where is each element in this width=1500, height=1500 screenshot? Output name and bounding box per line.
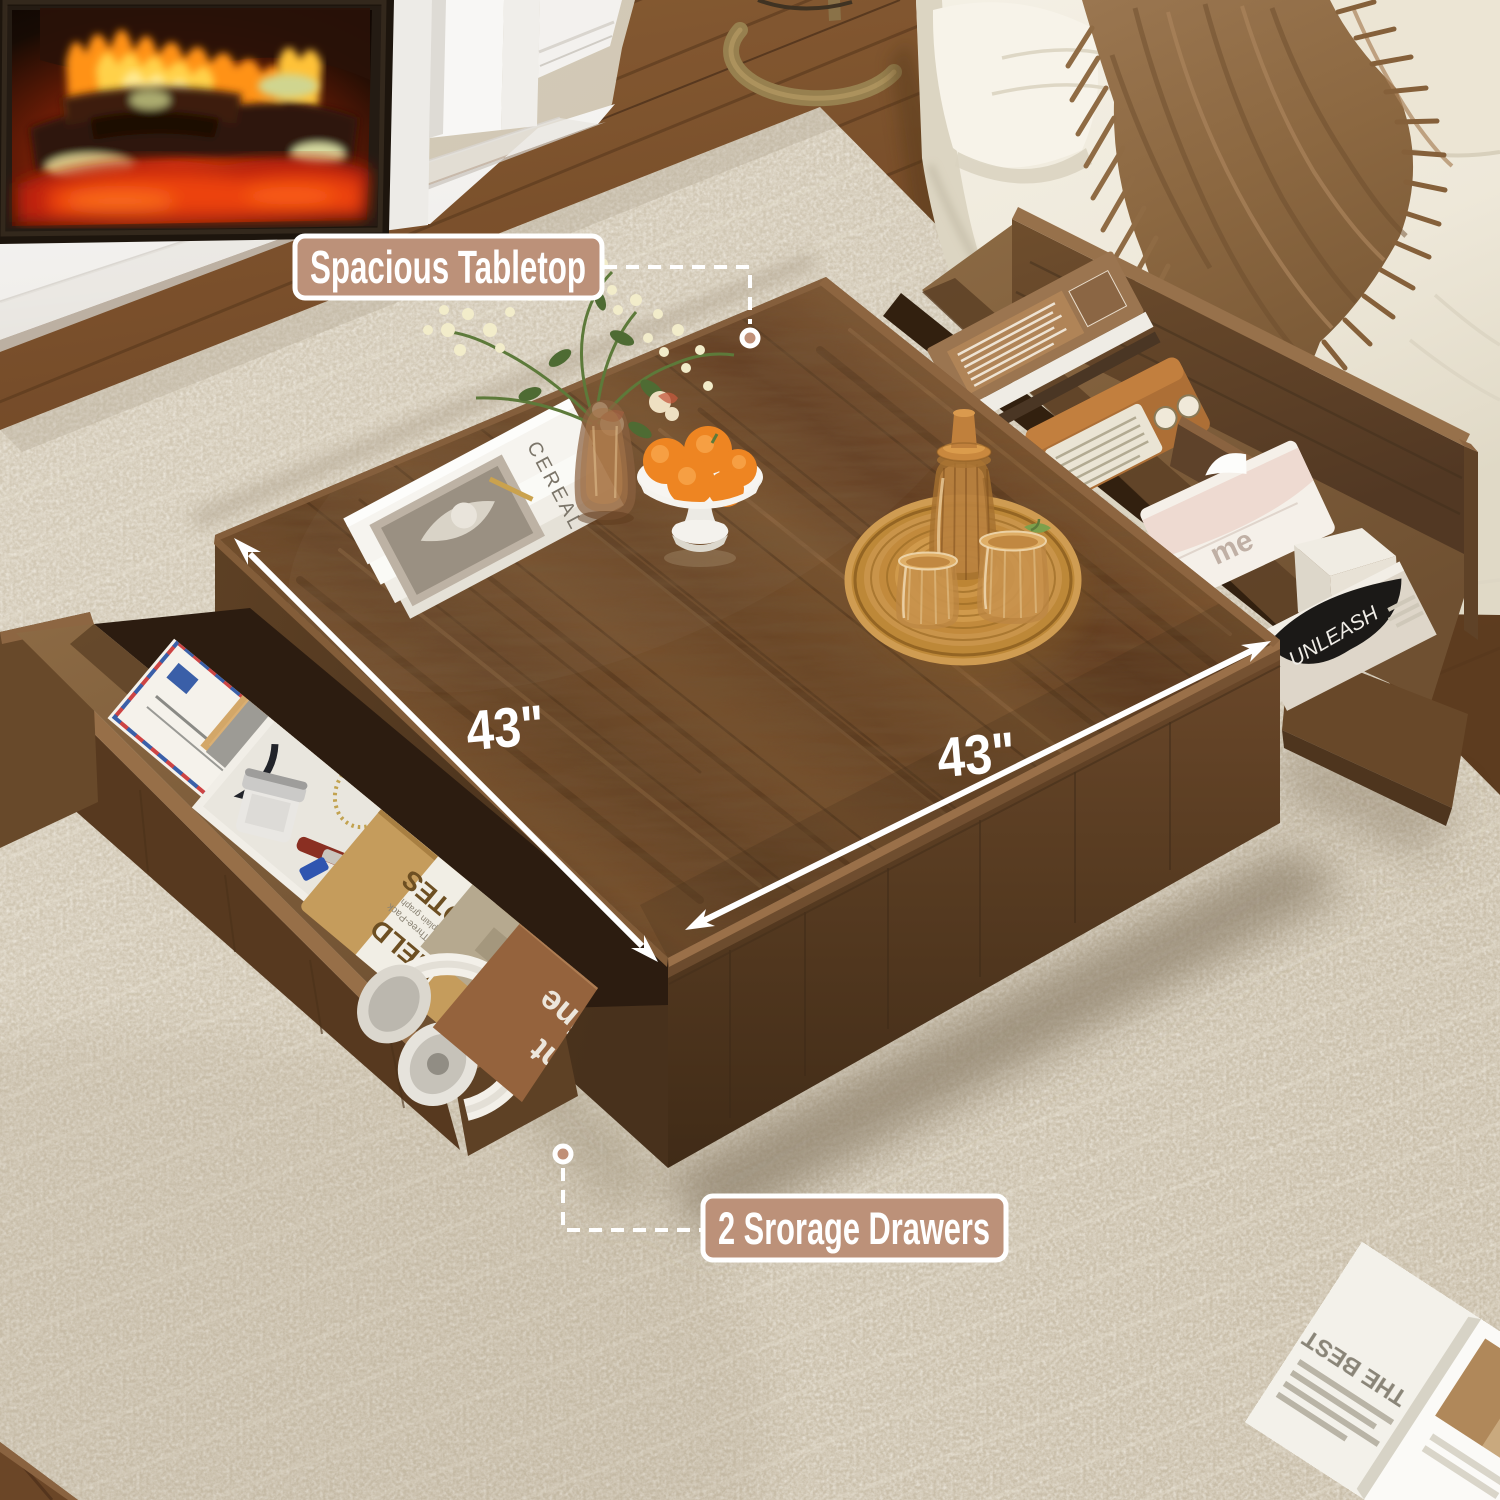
svg-text:43": 43": [464, 693, 547, 763]
svg-text:43": 43": [935, 720, 1018, 790]
svg-text:Spacious Tabletop: Spacious Tabletop: [310, 241, 586, 293]
svg-text:2 Srorage Drawers: 2 Srorage Drawers: [718, 1203, 990, 1254]
